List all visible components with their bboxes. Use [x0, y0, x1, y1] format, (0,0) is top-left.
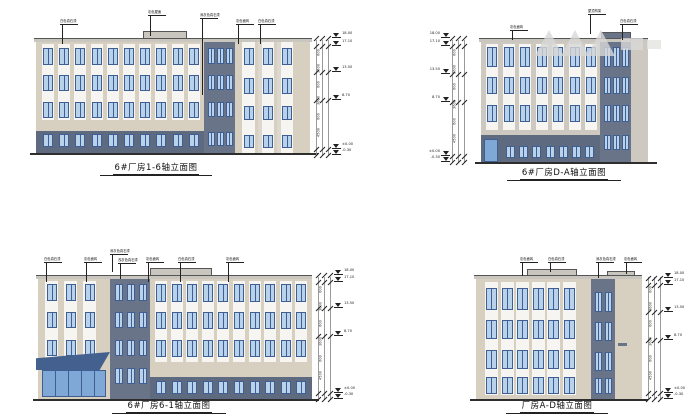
level-line	[664, 398, 673, 399]
drawing-canvas: 白色真石漆灰色屋面深灰色真石漆灰色面砖白色真石漆18.0017.1013.508…	[0, 0, 700, 417]
window	[502, 350, 513, 369]
elevation-6-1-title: 6#厂房6-1轴立面图	[112, 401, 226, 414]
dim-number: 600	[649, 285, 653, 295]
dim-number: 600	[649, 319, 653, 329]
level-triangle-icon	[665, 335, 671, 339]
window	[605, 378, 612, 394]
window-mullion	[491, 289, 492, 309]
level-triangle-icon	[665, 273, 671, 277]
window-mullion	[538, 321, 539, 338]
window-mullion	[538, 289, 539, 309]
dim-number: 3600	[649, 336, 653, 346]
window-mullion	[538, 351, 539, 368]
window	[533, 377, 544, 394]
level-line	[664, 277, 673, 278]
title-text: 6#厂房6-1轴立面图	[126, 401, 213, 413]
callout-leader	[522, 263, 523, 276]
window	[502, 320, 513, 339]
dim-number: 3600	[649, 302, 653, 312]
window	[548, 377, 559, 394]
window	[605, 322, 612, 341]
window-mullion	[522, 289, 523, 309]
dim-tick	[658, 397, 664, 403]
elevation-1-6-title: 6#厂房1-6轴立面图	[100, 163, 212, 176]
window	[548, 350, 559, 369]
elevation-a-d-title: 厂房A-D轴立面图	[506, 401, 608, 414]
window-mullion	[608, 353, 609, 370]
window-mullion	[522, 378, 523, 393]
level-label: ±0.00	[674, 386, 694, 390]
window	[595, 352, 602, 371]
window-mullion	[598, 353, 599, 370]
level-line	[664, 284, 673, 285]
window-mullion	[491, 321, 492, 338]
window-mullion	[553, 351, 554, 368]
window-mullion	[538, 378, 539, 393]
roof-block	[527, 269, 577, 276]
window	[595, 292, 602, 312]
callout-leader	[598, 263, 599, 278]
level-line	[664, 339, 673, 340]
title-text: 6#厂房1-6轴立面图	[113, 163, 200, 175]
window-mullion	[569, 321, 570, 338]
dim-tick	[646, 397, 652, 403]
window	[533, 350, 544, 369]
elevation-d-a-title: 6#厂房D-A轴立面图	[507, 168, 621, 181]
level-label: -0.30	[674, 392, 694, 396]
level-label: 18.00	[674, 271, 694, 275]
window	[564, 320, 575, 339]
material-callout: 深灰色真石漆	[596, 258, 621, 261]
window	[486, 350, 497, 369]
level-label: 13.50	[674, 305, 694, 309]
window	[564, 377, 575, 394]
window	[548, 320, 559, 339]
title-text: 6#厂房D-A轴立面图	[520, 168, 608, 180]
window	[517, 377, 528, 394]
window-mullion	[553, 378, 554, 393]
roof-block	[607, 271, 635, 276]
window	[486, 288, 497, 310]
window-mullion	[598, 379, 599, 393]
window	[564, 288, 575, 310]
window-mullion	[569, 289, 570, 309]
level-triangle-icon	[665, 394, 671, 398]
dim-tick	[652, 397, 658, 403]
window-mullion	[608, 323, 609, 340]
window-mullion	[553, 289, 554, 309]
window-mullion	[507, 321, 508, 338]
window-mullion	[507, 289, 508, 309]
title-text: 厂房A-D轴立面图	[520, 401, 595, 413]
window	[533, 320, 544, 339]
level-triangle-icon	[665, 307, 671, 311]
window-mullion	[491, 351, 492, 368]
material-callout: 灰色面砖	[624, 258, 649, 261]
window-mullion	[608, 379, 609, 393]
material-callout: 白色真石漆	[548, 258, 573, 261]
level-label: 17.10	[674, 278, 694, 282]
window-mullion	[491, 378, 492, 393]
window	[517, 350, 528, 369]
level-label: 8.70	[674, 333, 694, 337]
level-line	[664, 311, 673, 312]
window	[486, 377, 497, 394]
window	[595, 322, 602, 341]
window	[517, 320, 528, 339]
window	[486, 320, 497, 339]
window-mullion	[553, 321, 554, 338]
window-mullion	[522, 351, 523, 368]
level-triangle-icon	[665, 388, 671, 392]
window-mullion	[569, 378, 570, 393]
window	[605, 352, 612, 371]
window-mullion	[569, 351, 570, 368]
window-mullion	[507, 378, 508, 393]
window	[595, 378, 602, 394]
elevation-a-d-drawing: 灰色面砖白色真石漆深灰色真石漆灰色面砖18.0017.1013.508.70±0…	[0, 0, 700, 417]
window-mullion	[608, 293, 609, 311]
window-mullion	[522, 321, 523, 338]
window	[502, 377, 513, 394]
window	[502, 288, 513, 310]
window	[548, 288, 559, 310]
callout-leader	[626, 263, 627, 274]
material-callout: 灰色面砖	[520, 258, 545, 261]
dim-number: 600	[649, 353, 653, 363]
dim-number: 4500	[649, 370, 653, 380]
window-mullion	[598, 323, 599, 340]
wall-vent	[618, 343, 627, 346]
window	[517, 288, 528, 310]
window-mullion	[598, 293, 599, 311]
level-line	[664, 392, 673, 393]
window	[605, 292, 612, 312]
window	[533, 288, 544, 310]
window	[564, 350, 575, 369]
level-triangle-icon	[665, 280, 671, 284]
window-mullion	[507, 351, 508, 368]
callout-leader	[550, 263, 551, 272]
